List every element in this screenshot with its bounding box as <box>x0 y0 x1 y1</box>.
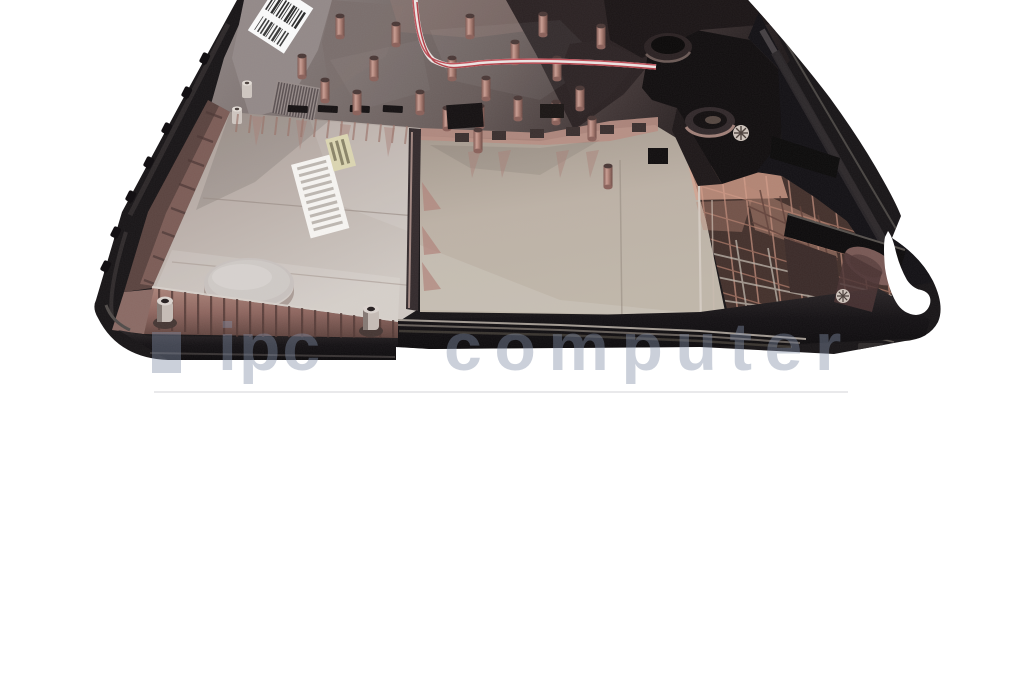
svg-text:ipc: ipc <box>218 309 322 385</box>
svg-text:computer: computer <box>444 309 854 385</box>
